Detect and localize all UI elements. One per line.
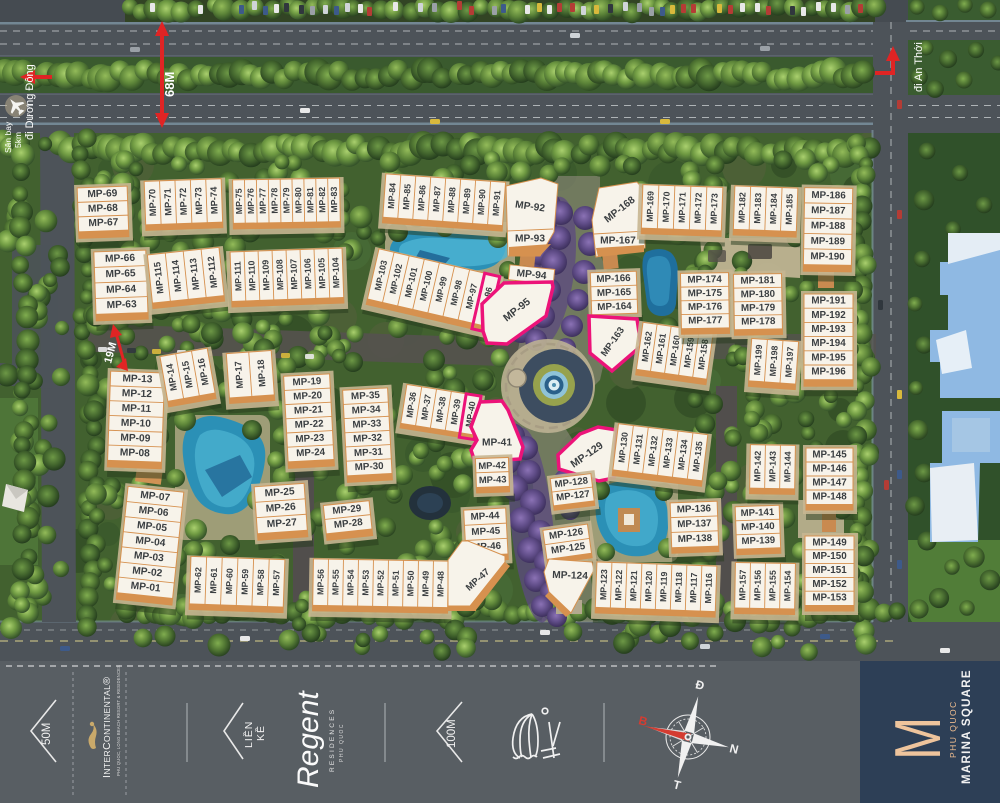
svg-text:MP-12: MP-12: [122, 388, 153, 400]
svg-text:MP-109: MP-109: [260, 260, 271, 291]
svg-text:MP-88: MP-88: [446, 187, 458, 214]
svg-text:MP-76: MP-76: [246, 188, 256, 214]
svg-text:MP-124: MP-124: [552, 570, 588, 582]
svg-text:MP-60: MP-60: [224, 568, 235, 594]
svg-text:MP-147: MP-147: [812, 478, 847, 489]
svg-text:MP-167: MP-167: [600, 236, 636, 247]
svg-text:MP-54: MP-54: [345, 569, 355, 595]
svg-text:MP-164: MP-164: [597, 301, 632, 313]
svg-text:PHU QUOC: PHU QUOC: [948, 700, 958, 758]
svg-text:MP-139: MP-139: [741, 535, 775, 547]
svg-text:MP-111: MP-111: [232, 261, 243, 291]
svg-text:MP-191: MP-191: [811, 296, 846, 307]
svg-text:MP-137: MP-137: [677, 518, 712, 530]
svg-text:100M: 100M: [446, 719, 458, 748]
svg-text:MP-50: MP-50: [405, 570, 415, 596]
svg-text:MP-148: MP-148: [812, 492, 847, 503]
svg-text:đi An Thới: đi An Thới: [913, 42, 925, 92]
svg-text:MP-48: MP-48: [435, 571, 445, 597]
svg-text:MP-119: MP-119: [658, 571, 669, 602]
svg-text:MP-66: MP-66: [105, 253, 136, 265]
svg-text:MP-184: MP-184: [768, 193, 779, 224]
svg-text:MP-122: MP-122: [613, 570, 624, 601]
svg-text:MP-183: MP-183: [752, 193, 763, 224]
svg-text:Regent: Regent: [292, 690, 325, 788]
svg-text:MP-86: MP-86: [416, 185, 428, 212]
svg-text:MP-141: MP-141: [740, 507, 775, 519]
svg-text:MP-67: MP-67: [88, 217, 119, 229]
svg-text:MP-152: MP-152: [812, 579, 847, 590]
svg-text:50M: 50M: [41, 723, 53, 745]
svg-text:MP-80: MP-80: [293, 187, 303, 213]
svg-text:MP-89: MP-89: [461, 188, 473, 215]
svg-text:MP-21: MP-21: [294, 404, 324, 417]
svg-text:MP-30: MP-30: [354, 461, 384, 474]
svg-text:MP-144: MP-144: [782, 451, 793, 482]
svg-text:5km: 5km: [13, 132, 23, 148]
svg-text:MARINA SQUARE: MARINA SQUARE: [961, 669, 973, 784]
svg-text:MP-24: MP-24: [296, 447, 326, 460]
svg-text:MP-56: MP-56: [315, 569, 325, 595]
svg-text:MP-72: MP-72: [178, 188, 189, 216]
svg-text:MP-121: MP-121: [628, 570, 639, 601]
svg-text:MP-43: MP-43: [479, 473, 507, 485]
svg-text:MP-42: MP-42: [478, 459, 506, 471]
svg-text:MP-41: MP-41: [482, 438, 512, 449]
svg-text:MP-93: MP-93: [515, 234, 545, 245]
svg-text:MP-34: MP-34: [352, 404, 382, 417]
svg-text:M: M: [883, 717, 955, 760]
svg-text:MP-74: MP-74: [209, 186, 220, 215]
svg-text:MP-55: MP-55: [330, 569, 340, 595]
svg-text:MP-106: MP-106: [302, 258, 313, 289]
svg-text:MP-82: MP-82: [317, 187, 327, 213]
svg-text:MP-77: MP-77: [257, 188, 267, 214]
svg-text:MP-182: MP-182: [736, 192, 747, 223]
svg-text:MP-57: MP-57: [271, 570, 282, 596]
svg-text:MP-110: MP-110: [246, 260, 257, 291]
svg-text:MP-151: MP-151: [812, 565, 847, 576]
svg-text:MP-85: MP-85: [401, 184, 413, 211]
svg-text:MP-25: MP-25: [264, 486, 295, 499]
svg-text:MP-195: MP-195: [811, 352, 846, 363]
svg-text:MP-51: MP-51: [390, 570, 400, 596]
svg-text:MP-143: MP-143: [767, 451, 778, 482]
svg-text:MP-78: MP-78: [269, 188, 279, 214]
svg-text:MP-84: MP-84: [386, 182, 398, 209]
svg-text:MP-193: MP-193: [811, 324, 846, 335]
svg-text:68M: 68M: [162, 72, 177, 97]
svg-text:MP-105: MP-105: [316, 258, 327, 289]
svg-text:PHU QUOC: PHU QUOC: [339, 723, 345, 762]
svg-text:MP-120: MP-120: [643, 571, 654, 602]
svg-text:MP-155: MP-155: [767, 570, 778, 601]
svg-text:MP-107: MP-107: [288, 259, 299, 290]
svg-text:MP-157: MP-157: [737, 570, 748, 601]
svg-text:MP-22: MP-22: [294, 418, 324, 431]
svg-text:MP-26: MP-26: [265, 502, 296, 515]
svg-text:MP-83: MP-83: [329, 187, 339, 213]
svg-text:MP-181: MP-181: [740, 275, 775, 287]
svg-text:PHU QUOC, LONG BEACH RESORT &: PHU QUOC, LONG BEACH RESORT & RESIDENCES: [116, 665, 121, 776]
svg-text:MP-170: MP-170: [661, 191, 672, 222]
svg-text:MP-188: MP-188: [811, 220, 846, 232]
svg-text:MP-90: MP-90: [476, 189, 488, 216]
svg-text:MP-59: MP-59: [239, 569, 250, 595]
svg-text:MP-44: MP-44: [470, 510, 500, 523]
svg-text:MP-18: MP-18: [256, 359, 268, 387]
svg-text:MP-27: MP-27: [266, 517, 297, 530]
svg-text:MP-104: MP-104: [330, 257, 341, 288]
svg-text:MP-75: MP-75: [234, 188, 244, 214]
svg-text:MP-71: MP-71: [163, 188, 174, 216]
svg-text:KỀ: KỀ: [254, 725, 267, 741]
svg-text:MP-20: MP-20: [293, 390, 323, 403]
svg-text:MP-61: MP-61: [208, 567, 219, 593]
svg-text:MP-189: MP-189: [811, 236, 846, 248]
svg-text:MP-140: MP-140: [741, 521, 775, 533]
svg-text:MP-169: MP-169: [645, 191, 656, 222]
svg-text:MP-179: MP-179: [741, 302, 776, 314]
svg-text:MP-177: MP-177: [688, 315, 723, 327]
svg-text:MP-118: MP-118: [673, 572, 684, 603]
svg-text:MP-13: MP-13: [122, 373, 153, 385]
svg-text:MP-172: MP-172: [693, 192, 704, 223]
svg-text:MP-73: MP-73: [193, 187, 204, 215]
svg-text:MP-116: MP-116: [703, 573, 714, 604]
svg-text:MP-180: MP-180: [741, 289, 776, 301]
svg-text:MP-33: MP-33: [352, 418, 382, 431]
svg-text:MP-08: MP-08: [120, 447, 151, 459]
svg-text:MP-49: MP-49: [420, 571, 430, 597]
svg-text:MP-192: MP-192: [811, 310, 846, 321]
svg-text:MP-87: MP-87: [431, 186, 443, 213]
svg-text:MP-187: MP-187: [811, 205, 846, 217]
svg-text:MP-23: MP-23: [295, 433, 325, 446]
svg-text:MP-32: MP-32: [353, 432, 383, 445]
svg-text:MP-154: MP-154: [782, 570, 793, 601]
svg-text:MP-35: MP-35: [351, 390, 381, 403]
svg-text:MP-153: MP-153: [812, 593, 847, 604]
svg-text:MP-117: MP-117: [688, 572, 699, 603]
svg-text:MP-136: MP-136: [677, 503, 712, 515]
svg-text:MP-69: MP-69: [87, 188, 118, 200]
svg-text:MP-150: MP-150: [812, 551, 847, 562]
svg-text:MP-70: MP-70: [147, 189, 158, 217]
svg-text:MP-166: MP-166: [596, 273, 631, 285]
svg-text:MP-146: MP-146: [812, 464, 847, 475]
svg-text:MP-53: MP-53: [360, 570, 370, 596]
svg-text:MP-64: MP-64: [106, 284, 137, 296]
svg-text:MP-171: MP-171: [677, 192, 688, 223]
svg-text:MP-45: MP-45: [471, 526, 501, 539]
svg-text:MP-185: MP-185: [784, 194, 795, 225]
svg-text:MP-190: MP-190: [810, 251, 845, 263]
svg-text:MP-79: MP-79: [281, 187, 291, 213]
svg-text:MP-58: MP-58: [255, 569, 266, 595]
svg-text:MP-31: MP-31: [354, 447, 384, 460]
svg-text:MP-174: MP-174: [687, 274, 722, 286]
svg-text:MP-19: MP-19: [292, 376, 322, 389]
svg-text:MP-194: MP-194: [811, 338, 846, 349]
svg-text:MP-173: MP-173: [709, 193, 720, 224]
svg-text:MP-138: MP-138: [678, 533, 713, 545]
svg-text:MP-91: MP-91: [491, 190, 503, 217]
svg-text:MP-145: MP-145: [812, 450, 847, 461]
svg-text:MP-165: MP-165: [597, 287, 632, 299]
svg-text:MP-65: MP-65: [105, 268, 136, 280]
svg-text:MP-63: MP-63: [106, 299, 137, 311]
svg-text:MP-196: MP-196: [811, 367, 846, 378]
svg-text:MP-156: MP-156: [752, 570, 763, 601]
svg-text:MP-09: MP-09: [120, 433, 151, 445]
svg-text:MP-175: MP-175: [688, 288, 723, 300]
svg-text:Sân bay: Sân bay: [3, 121, 13, 153]
svg-text:MP-81: MP-81: [305, 187, 315, 213]
svg-text:LIỀN: LIỀN: [242, 721, 255, 748]
svg-text:MP-52: MP-52: [375, 570, 385, 596]
svg-text:MP-17: MP-17: [233, 361, 245, 389]
svg-text:INTERCONTINENTAL®: INTERCONTINENTAL®: [101, 677, 113, 778]
svg-text:MP-108: MP-108: [274, 259, 285, 290]
svg-text:RESIDENCES: RESIDENCES: [329, 708, 336, 772]
svg-text:MP-123: MP-123: [598, 569, 609, 600]
svg-text:MP-178: MP-178: [741, 316, 776, 328]
svg-text:MP-142: MP-142: [752, 451, 763, 482]
svg-text:MP-11: MP-11: [121, 403, 151, 415]
svg-text:MP-10: MP-10: [121, 418, 152, 430]
svg-text:MP-149: MP-149: [812, 537, 847, 548]
svg-text:MP-186: MP-186: [811, 190, 846, 202]
svg-text:MP-68: MP-68: [88, 203, 119, 215]
svg-text:MP-62: MP-62: [192, 567, 203, 593]
svg-text:MP-176: MP-176: [688, 301, 723, 313]
